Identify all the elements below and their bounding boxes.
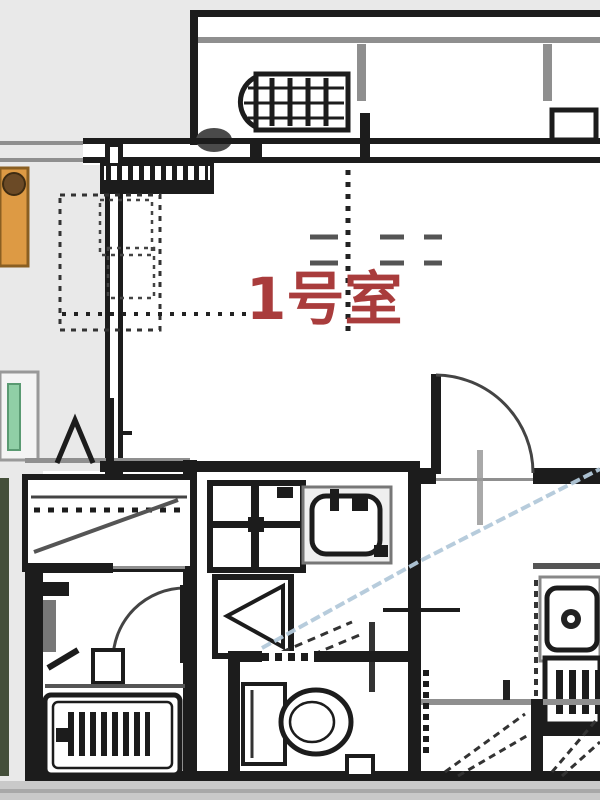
- plant-strip-light: [8, 384, 20, 450]
- door-threshold: [436, 478, 533, 481]
- balcony-post-1: [357, 44, 366, 101]
- washbasin-icon: [303, 487, 391, 563]
- plant-strip-dark: [0, 478, 9, 776]
- kitchen-sink-icon: [540, 577, 600, 661]
- counter-top-edge: [533, 563, 600, 569]
- wc-west-wall: [228, 651, 240, 781]
- neighbor-wall-line-2: [0, 158, 83, 162]
- outdoor-unit-knob: [3, 173, 25, 195]
- gas-stove-icon: [545, 658, 600, 724]
- genkan-wall: [531, 699, 543, 781]
- floor-plan-drawing: [0, 0, 600, 800]
- bathtub-icon: [45, 695, 180, 775]
- bath-door-leaf: [180, 585, 190, 663]
- basin-tap: [352, 494, 368, 511]
- neighbor-wall-line-1: [0, 141, 83, 145]
- bath-faucet-box: [93, 650, 123, 683]
- paper-holder: [347, 756, 373, 776]
- bath-door-threshold: [113, 566, 185, 569]
- porch-line: [477, 450, 483, 525]
- hall-wall: [408, 471, 421, 781]
- basin-faucet: [330, 489, 339, 511]
- kitchen-counter: [533, 563, 600, 736]
- balcony-rail-inner: [190, 37, 600, 43]
- north-wall-outer: [83, 138, 600, 144]
- balcony-rail-outer: [190, 10, 600, 17]
- water-heater-icon: [240, 74, 348, 130]
- washing-machine-space-icon: [215, 577, 291, 656]
- cabinet-tick: [277, 487, 293, 498]
- genkan-tick: [503, 680, 510, 700]
- cabinet-knob: [248, 517, 264, 532]
- bath-notch-2: [43, 600, 56, 652]
- storage-counter: [25, 477, 193, 569]
- door-leaf: [431, 374, 441, 474]
- balcony-post-2: [543, 44, 552, 101]
- bottom-band: [0, 781, 600, 800]
- bath-notch-1: [43, 582, 69, 596]
- toilet-bowl: [281, 690, 351, 754]
- genkan-step-edge: [421, 699, 600, 705]
- wc-north-wall: [228, 651, 415, 662]
- room-number-label: 1号室: [246, 270, 446, 328]
- basin-corner: [374, 545, 388, 557]
- bath-north-wall: [25, 563, 113, 573]
- cabinet-grid: [210, 483, 303, 570]
- tub-apron-line: [45, 684, 185, 688]
- floor-plan: 1号室: [0, 0, 600, 800]
- room-south-wall: [100, 461, 420, 472]
- window-counter-bar: [100, 163, 214, 194]
- north-wall-inner: [83, 157, 600, 163]
- bath-west-wall: [25, 569, 43, 781]
- shutter-box: [552, 110, 596, 140]
- balcony-side-wall: [190, 10, 198, 145]
- counter-bottom-wall: [533, 724, 600, 736]
- tub-drain: [56, 728, 68, 742]
